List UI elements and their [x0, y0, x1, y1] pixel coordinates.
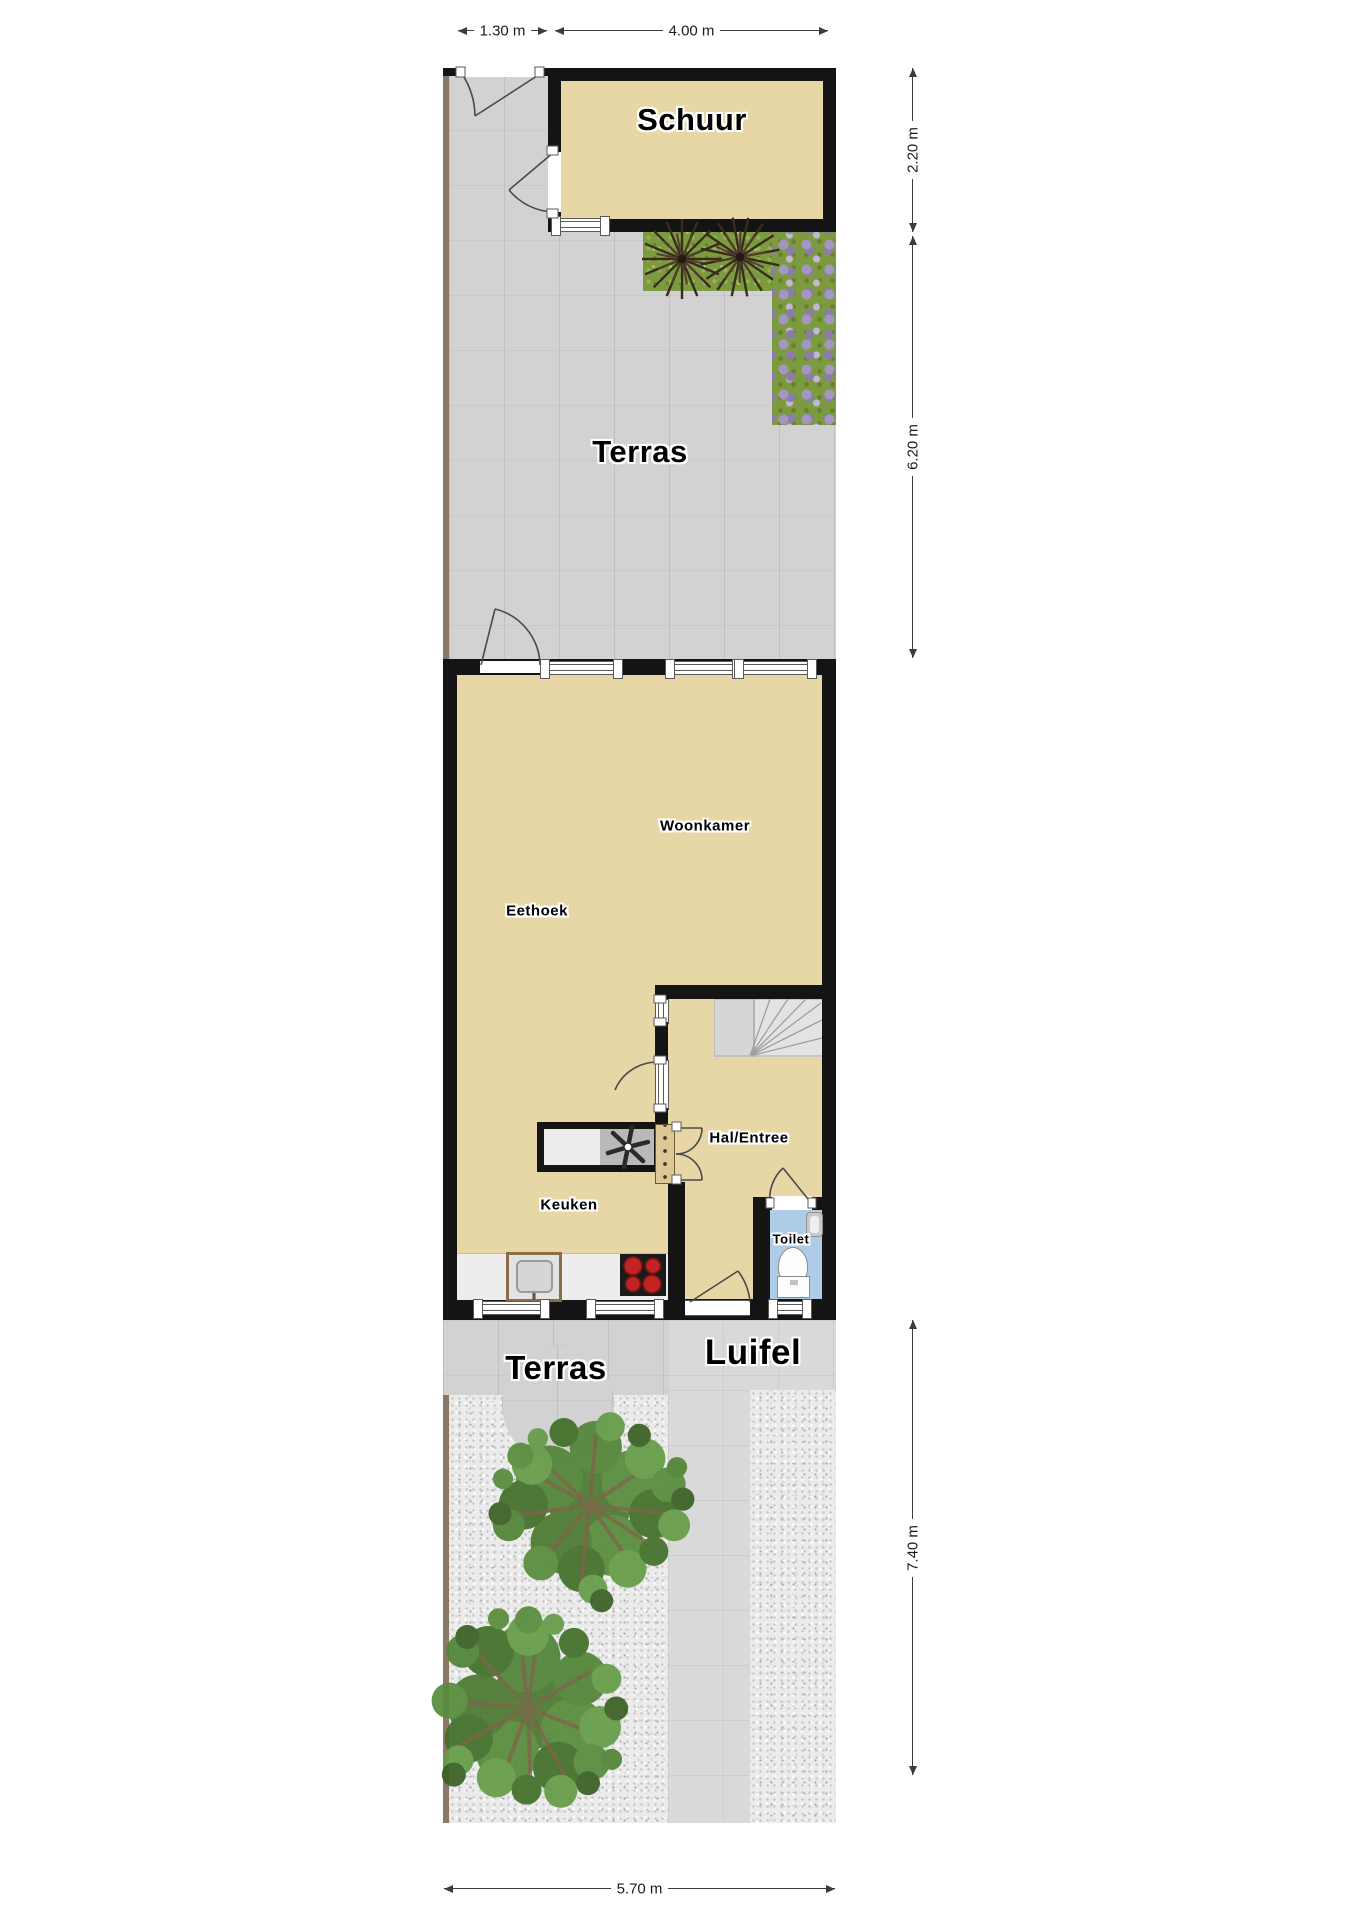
door-jambs: [456, 67, 816, 1208]
dimension-right-lower: 7.40 m: [912, 1320, 913, 1775]
dimension-value: 6.20 m: [904, 418, 923, 476]
dimension-bottom: 5.70 m: [444, 1888, 835, 1889]
dimension-arrow: [826, 1885, 835, 1893]
spiky-plant-icon: [693, 210, 788, 305]
dimension-value: 2.20 m: [904, 121, 923, 179]
label-terras-lower: Terras: [505, 1349, 606, 1387]
label-luifel: Luifel: [705, 1333, 801, 1373]
plan-linework: [0, 0, 1358, 1920]
fan-symbol-icon: [608, 1127, 648, 1167]
dimension-arrow: [538, 27, 547, 35]
label-woonkamer: Woonkamer: [660, 818, 750, 835]
tree-icon: [489, 1412, 695, 1612]
label-toilet: Toilet: [773, 1232, 810, 1247]
dimension-arrow: [909, 1766, 917, 1775]
spiky-plant-icon: [642, 219, 722, 299]
label-terras-upper: Terras: [592, 434, 688, 470]
dimension-right-middle: 6.20 m: [912, 236, 913, 658]
dimension-value: 4.00 m: [663, 22, 721, 41]
dimension-value: 5.70 m: [611, 1880, 669, 1899]
dimension-arrow: [444, 1885, 453, 1893]
dimension-arrow: [909, 1320, 917, 1329]
dimension-top-small: 1.30 m: [458, 30, 547, 31]
dimension-value: 1.30 m: [474, 22, 532, 41]
dimension-value: 7.40 m: [904, 1519, 923, 1577]
dimension-arrow: [555, 27, 564, 35]
door-swing-icons: [462, 74, 812, 1302]
label-keuken: Keuken: [540, 1197, 597, 1214]
dimension-top-large: 4.00 m: [555, 30, 828, 31]
dimension-arrow: [909, 223, 917, 232]
tree-icon: [377, 1567, 669, 1860]
dimension-arrow: [909, 649, 917, 658]
label-hal-entree: Hal/Entree: [709, 1130, 788, 1147]
dimension-right-upper: 2.20 m: [912, 68, 913, 232]
dimension-arrow: [458, 27, 467, 35]
label-eethoek: Eethoek: [506, 903, 568, 920]
floorplan-canvas: Schuur Terras Woonkamer Eethoek Hal/Entr…: [0, 0, 1358, 1920]
label-schuur: Schuur: [637, 102, 747, 138]
dimension-arrow: [819, 27, 828, 35]
dimension-arrow: [909, 68, 917, 77]
dimension-arrow: [909, 236, 917, 245]
